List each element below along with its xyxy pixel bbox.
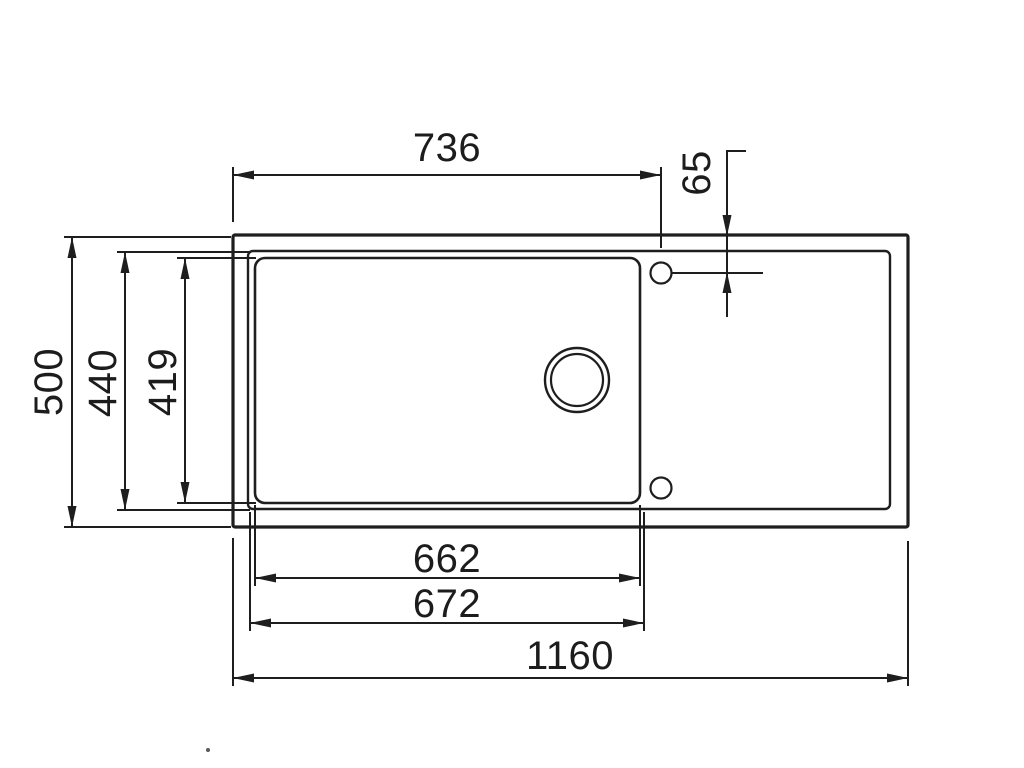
dim-500-group: 500 [27, 237, 231, 527]
dim-440-arrow-bottom [121, 489, 130, 510]
dim-662-group: 662 [255, 505, 640, 586]
dim-662-arrow-left [255, 574, 276, 583]
dim-662-label: 662 [413, 537, 481, 581]
sink-inner-rim [248, 251, 890, 509]
dim-65-arrow-up [723, 272, 732, 293]
bowl-outline [255, 258, 640, 503]
sink-outline-group [233, 235, 908, 527]
dim-672-arrow-left [250, 619, 271, 628]
drain-hole-outer-ring [545, 348, 609, 412]
dim-672-label: 672 [413, 582, 481, 626]
dim-736-group: 736 [233, 126, 661, 248]
dim-672-arrow-right [623, 619, 644, 628]
dim-1160-label: 1160 [526, 634, 614, 678]
tap-hole-bottom [651, 478, 672, 499]
sink-outer-edge [233, 235, 908, 527]
dim-500-arrow-bottom [68, 506, 77, 527]
dim-1160-arrow-left [233, 674, 254, 683]
dim-736-label: 736 [413, 126, 481, 170]
dim-440-label: 440 [81, 349, 125, 417]
dim-419-arrow-bottom [181, 482, 190, 503]
dim-500-arrow-top [68, 237, 77, 258]
dim-1160-arrow-right [887, 674, 908, 683]
dim-736-arrow-left [233, 171, 254, 180]
sink-technical-drawing: 736 65 500 440 419 [0, 0, 1024, 768]
dim-419-group: 419 [141, 258, 256, 503]
sink-technical-drawing-page: 736 65 500 440 419 [0, 0, 1024, 768]
dim-419-label: 419 [141, 348, 185, 416]
dim-500-label: 500 [27, 348, 71, 416]
dim-662-arrow-right [619, 574, 640, 583]
drain-hole-inner-ring [551, 354, 603, 406]
stray-dot [206, 748, 210, 752]
dim-1160-group: 1160 [233, 538, 908, 686]
dim-736-arrow-right [640, 171, 661, 180]
dim-440-arrow-top [121, 252, 130, 273]
dim-65-arrow-down [723, 215, 732, 236]
tap-hole-top [651, 263, 672, 284]
dim-65-label: 65 [675, 150, 719, 196]
dim-419-arrow-top [181, 258, 190, 279]
